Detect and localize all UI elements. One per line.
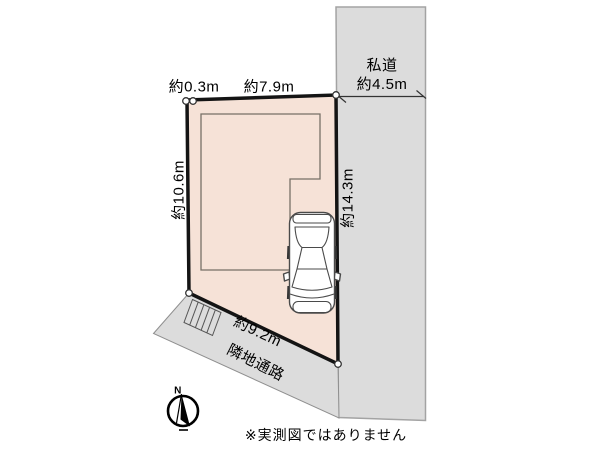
dim-label-top-small: 約0.3m: [169, 76, 220, 97]
car-topview: [284, 213, 341, 314]
compass-icon: [168, 394, 198, 430]
boundary-marker: [190, 98, 197, 105]
boundary-marker: [186, 290, 193, 297]
side-road-width: 約4.5m: [357, 75, 408, 94]
disclaimer-text: ※実測図ではありません: [245, 425, 407, 445]
floor-plan-canvas: 約0.3m 約7.9m 約10.6m 約14.3m 約9.2m 私道 約4.5m…: [0, 0, 600, 450]
compass-north-label: N: [174, 386, 182, 397]
dim-label-top: 約7.9m: [244, 76, 295, 97]
dim-label-right: 約14.3m: [337, 168, 358, 228]
boundary-marker: [335, 361, 342, 368]
side-road-name: 私道: [357, 56, 408, 75]
dim-label-left: 約10.6m: [168, 160, 189, 220]
side-road-label: 私道 約4.5m: [357, 56, 408, 94]
boundary-marker: [183, 98, 190, 105]
boundary-marker: [333, 92, 340, 99]
plot-diagram: [0, 0, 600, 450]
